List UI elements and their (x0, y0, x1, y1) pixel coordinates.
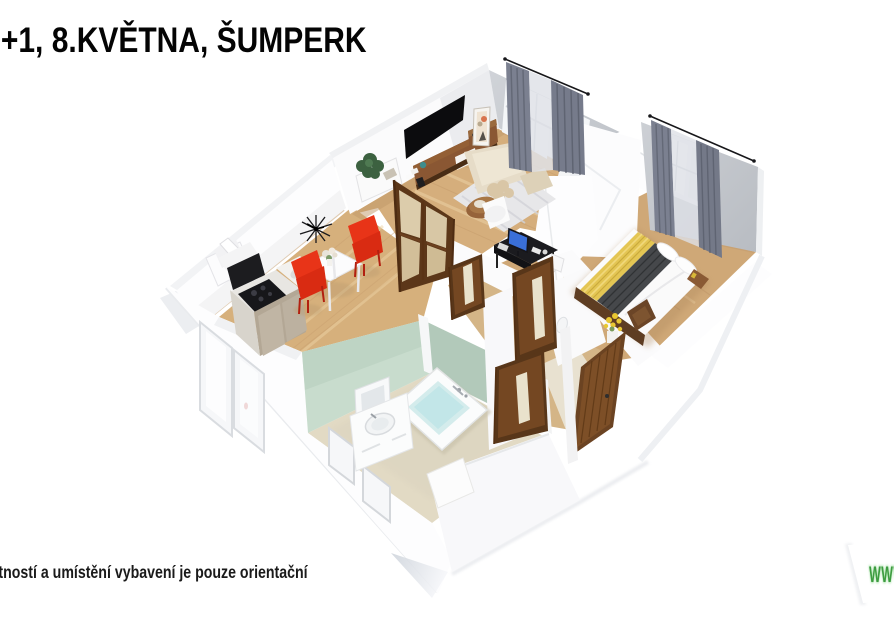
svg-text:WWW: WWW (869, 562, 894, 587)
svg-text:+1, 8.KVĚTNA, ŠUMPERK: +1, 8.KVĚTNA, ŠUMPERK (1, 19, 367, 60)
svg-text:tností a umístění vybavení je: tností a umístění vybavení je pouze orie… (0, 564, 308, 583)
